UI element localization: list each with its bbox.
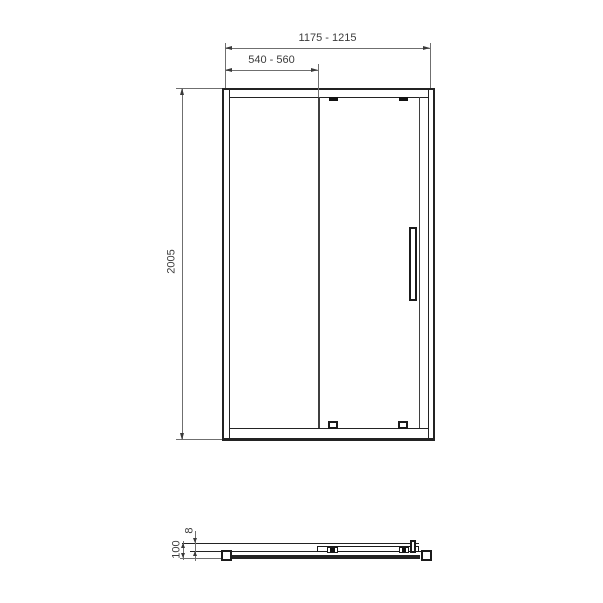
profile-bottom-rail-bar xyxy=(232,555,420,559)
dim-glass-thickness-label: 8 xyxy=(185,526,196,536)
profile-front-face-line xyxy=(182,543,419,544)
dim-glass-thickness-arrow-bottom xyxy=(193,551,197,556)
profile-left-wall-cap xyxy=(221,550,232,561)
dim-glass-thickness-arrow-top xyxy=(193,538,197,543)
shower-door-technical-drawing: 1175 - 1215 540 - 560 2005 xyxy=(0,0,603,603)
dim-profile-depth-label: 100 xyxy=(172,540,183,560)
profile-handle xyxy=(410,540,416,553)
profile-roller-left-clip-core xyxy=(330,548,335,552)
profile-right-wall-cap xyxy=(421,550,432,561)
profile-view: 8 100 xyxy=(0,0,603,603)
profile-roller-right-clip-core xyxy=(402,548,406,552)
dim-glass-thickness-line xyxy=(195,531,196,561)
